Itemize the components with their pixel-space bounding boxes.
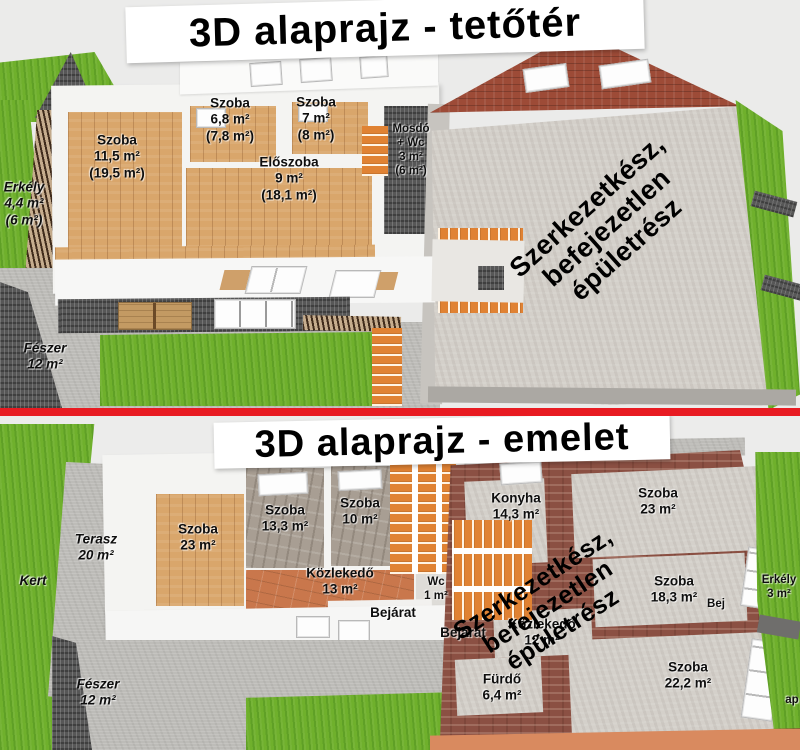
label-szoba222: Szoba 22,2 m²	[665, 660, 712, 693]
dormer-window-3	[359, 55, 388, 79]
exterior-steps	[372, 328, 402, 406]
room-label-szoba-nagy: Szoba 11,5 m² (19,5 m²)	[89, 132, 145, 181]
stair-railing-5	[452, 548, 532, 554]
label-szoba10: Szoba 10 m²	[340, 496, 380, 529]
bed-szoba133	[257, 472, 308, 497]
attic-stair-flight	[362, 126, 388, 176]
floor-staircase-house	[390, 452, 456, 574]
label-bej-partial: Bej	[707, 597, 725, 611]
label-terasz: Terasz 20 m²	[75, 532, 117, 565]
dormer-window-1	[249, 61, 283, 87]
label-konyha: Konyha 14,3 m²	[491, 491, 541, 524]
red-divider-line	[0, 408, 800, 416]
label-wc: Wc 1 m²	[424, 575, 448, 603]
stair-railing-3	[412, 452, 418, 574]
attic-title: 3D alaprajz - tetőtér	[188, 0, 581, 56]
unfinished-bottom-wall	[428, 386, 796, 405]
room-label-eloszoba: Előszoba 9 m² (18,1 m²)	[259, 154, 318, 203]
label-kozlekedo13: Közlekedő 13 m²	[306, 566, 374, 599]
konyha-skylight	[499, 461, 542, 486]
unfinished-facade-window	[478, 266, 504, 290]
front-lawn	[100, 332, 374, 406]
label-szoba23-bal: Szoba 23 m²	[178, 522, 218, 555]
floor-facade-window-2	[338, 620, 370, 642]
label-szoba23-jobb: Szoba 23 m²	[638, 486, 678, 519]
floor-title-banner: 3D alaprajz - emelet	[214, 413, 671, 469]
facade-window	[214, 299, 296, 329]
label-erkely3: Erkély 3 m²	[762, 573, 797, 601]
label-ap-partial: ap	[785, 693, 798, 707]
dormer-window-2	[299, 57, 333, 83]
room-label-mosdo: Mosdó + Wc 3 m² (6 m²)	[392, 122, 429, 178]
stair-railing-4	[436, 452, 442, 574]
label-bejarat-1: Bejárat	[370, 605, 416, 621]
floor-title: 3D alaprajz - emelet	[254, 416, 630, 467]
bed-szoba10	[338, 469, 383, 491]
entrance-double-door	[118, 302, 192, 330]
facade-skylight-a	[245, 266, 308, 294]
floor-facade-window-1	[296, 616, 330, 638]
facade-skylight-b	[329, 270, 382, 298]
room-label-szoba-kis1: Szoba 6,8 m² (7,8 m²)	[206, 95, 254, 144]
floorplan-image: Erkély 4,4 m² (6 m²) Szoba 11,5 m² (19,5…	[0, 0, 800, 750]
attic-panel: Erkély 4,4 m² (6 m²) Szoba 11,5 m² (19,5…	[0, 0, 800, 408]
room-label-szoba-kis2: Szoba 7 m² (8 m²)	[296, 94, 336, 143]
room-label-feszer-attic: Fészer 12 m²	[24, 341, 67, 374]
room-label-erkely: Erkély 4,4 m² (6 m²)	[4, 179, 45, 228]
label-kert: Kert	[19, 573, 46, 589]
label-feszer-floor: Fészer 12 m²	[77, 677, 120, 710]
label-szoba133: Szoba 13,3 m²	[262, 503, 309, 536]
lawn-strip-floor	[246, 692, 458, 750]
